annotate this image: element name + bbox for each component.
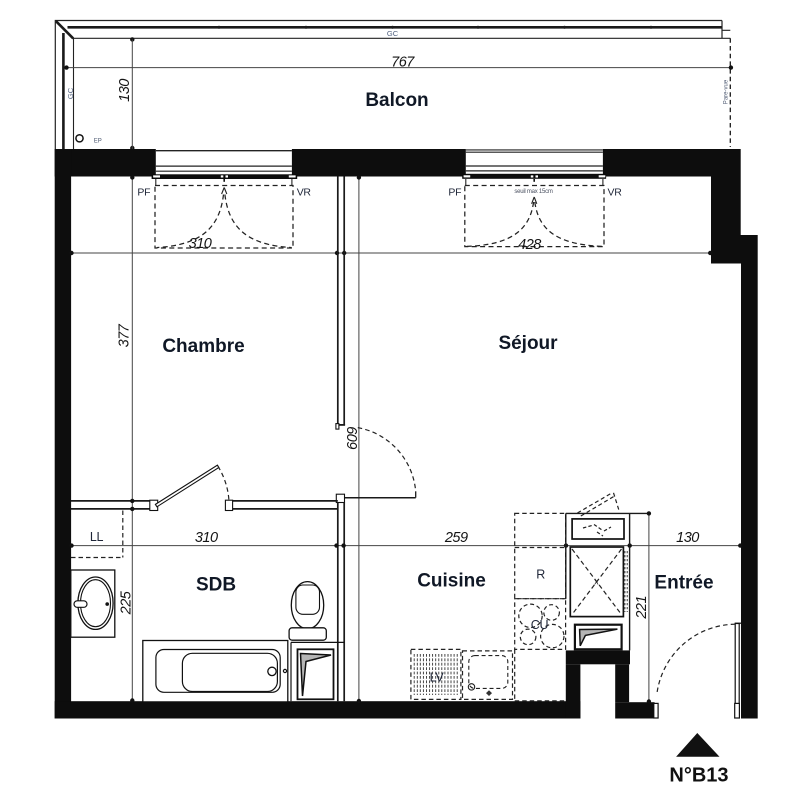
svg-text:R: R xyxy=(536,568,545,582)
svg-text:LL: LL xyxy=(90,530,104,544)
svg-text:PF: PF xyxy=(448,187,461,199)
svg-text:LV: LV xyxy=(430,671,445,685)
svg-text:377: 377 xyxy=(117,323,133,347)
svg-text:EP: EP xyxy=(94,139,102,145)
svg-text:SDB: SDB xyxy=(196,575,236,596)
svg-text:Cuisine: Cuisine xyxy=(417,571,486,592)
svg-text:CU: CU xyxy=(531,618,549,632)
svg-text:609: 609 xyxy=(345,427,361,450)
svg-text:130: 130 xyxy=(676,530,699,546)
svg-text:130: 130 xyxy=(117,79,133,102)
svg-text:259: 259 xyxy=(444,530,468,546)
svg-text:N°B13: N°B13 xyxy=(669,765,728,787)
svg-text:GC: GC xyxy=(66,87,75,99)
svg-text:PF: PF xyxy=(137,187,150,199)
svg-text:Chambre: Chambre xyxy=(162,336,244,357)
svg-text:225: 225 xyxy=(119,590,135,615)
svg-text:310: 310 xyxy=(195,530,218,546)
svg-text:310: 310 xyxy=(189,236,212,252)
svg-text:GC: GC xyxy=(387,29,399,38)
svg-text:x: x xyxy=(594,577,599,587)
svg-text:seuil max 15cm: seuil max 15cm xyxy=(514,189,552,195)
svg-text:221: 221 xyxy=(634,596,650,620)
svg-text:VR: VR xyxy=(608,186,623,198)
svg-text:Balcon: Balcon xyxy=(365,90,428,111)
svg-text:Séjour: Séjour xyxy=(498,333,558,354)
svg-text:428: 428 xyxy=(518,237,541,253)
svg-text:Entrée: Entrée xyxy=(654,573,713,594)
svg-text:VR: VR xyxy=(297,186,312,198)
svg-text:767: 767 xyxy=(391,55,415,71)
svg-text:Pare-vue: Pare-vue xyxy=(724,79,730,104)
